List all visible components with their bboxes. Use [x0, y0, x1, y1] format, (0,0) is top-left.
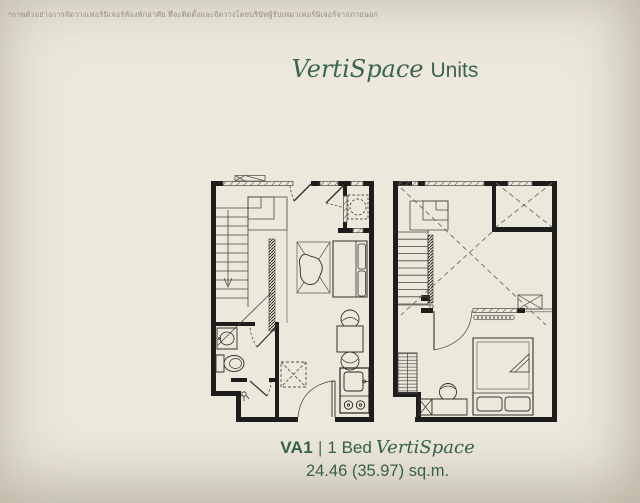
- unit-code: VA1: [280, 438, 313, 457]
- balcony-door: [326, 185, 344, 208]
- page-title: VertiSpaceUnits: [205, 55, 565, 83]
- pillow: [477, 397, 502, 411]
- staircase: [398, 201, 448, 308]
- desk-chair: [440, 384, 457, 401]
- pillow: [505, 397, 530, 411]
- unit-name-line: VA1|1 BedVertiSpace: [205, 437, 550, 460]
- caption-separator: |: [313, 438, 327, 457]
- sofa: [333, 241, 367, 297]
- title-suffix: Units: [431, 59, 479, 82]
- desk: [432, 399, 467, 415]
- kitchen-counter: [340, 368, 369, 413]
- interior-walls: [216, 186, 371, 417]
- curtain-coil: [474, 315, 515, 320]
- toilet: [216, 355, 244, 372]
- void-box: [496, 183, 552, 227]
- bathroom: [216, 325, 278, 372]
- shower-door: [250, 381, 271, 396]
- upper-floor-plan: [388, 175, 560, 425]
- unit-bed-type: 1 Bed: [327, 438, 371, 457]
- unit-caption: VA1|1 BedVertiSpace 24.46 (35.97) sq.m.: [205, 437, 550, 481]
- down-arrow: [224, 210, 232, 287]
- refrigerator-space: [281, 362, 306, 387]
- double-bed: [473, 338, 533, 415]
- title-brand: VertiSpace: [292, 55, 424, 83]
- dining-set: [337, 310, 363, 370]
- stair-railing-hatch: [269, 239, 275, 331]
- unit-brand: VertiSpace: [376, 437, 475, 458]
- brochure-page: { "page": { "background": "#ece8db", "ac…: [0, 0, 640, 503]
- basin: [217, 328, 237, 349]
- lower-floor-plan: [205, 175, 380, 425]
- entrance-door: [298, 381, 335, 417]
- living-area: [297, 241, 367, 297]
- shower-room: [239, 381, 271, 401]
- photo-disclaimer-text: *ภาพตัวอย่างการจัดวางเฟอร์นิเจอร์ห้องพัก…: [8, 9, 378, 21]
- stove-burners: [344, 401, 364, 409]
- service-door: [290, 184, 311, 201]
- kitchen-sink: [344, 372, 363, 391]
- unit-area: 24.46 (35.97) sq.m.: [205, 461, 550, 482]
- wardrobe: [398, 353, 417, 393]
- ac-unit: [235, 176, 265, 182]
- washing-machine: [348, 195, 368, 219]
- stair-break-line: [218, 293, 271, 345]
- windows: [223, 182, 363, 233]
- dining-table: [337, 326, 363, 352]
- stair-railing-hatch: [428, 235, 433, 303]
- bedroom-door: [434, 311, 472, 350]
- desk-area: [419, 384, 467, 416]
- blanket-fold: [510, 354, 529, 372]
- exterior-walls: [393, 181, 557, 422]
- glazed-partition: [473, 309, 517, 313]
- dining-chair: [341, 352, 359, 370]
- dining-chair: [341, 310, 359, 328]
